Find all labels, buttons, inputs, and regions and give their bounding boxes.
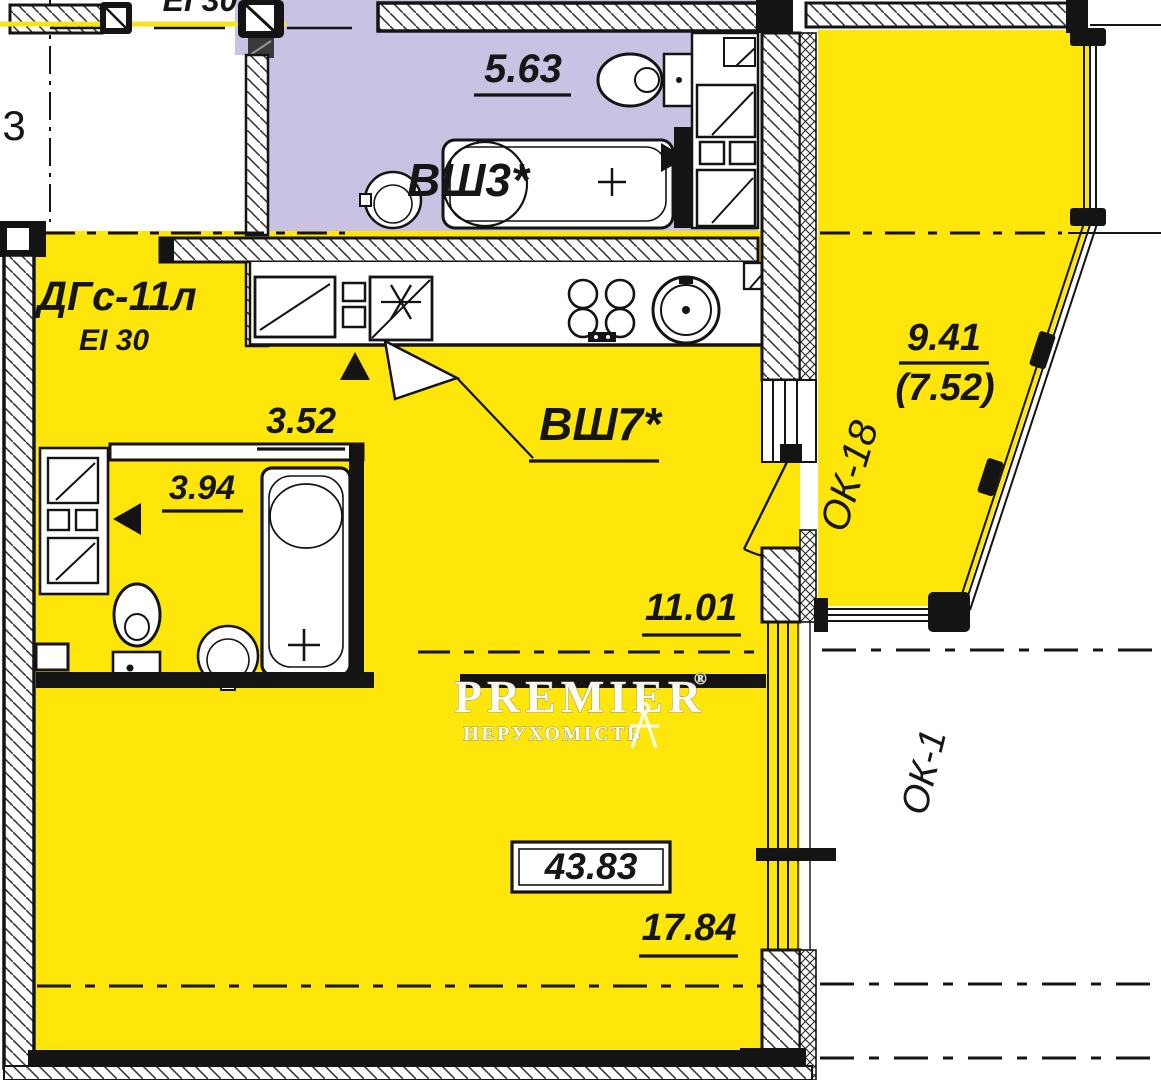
- wall-bathroom-left: [246, 55, 268, 235]
- wall-kitchen-top: [160, 238, 758, 262]
- area-balcony-reduced: (7.52): [895, 367, 994, 409]
- wall-step: [36, 644, 68, 670]
- wall-right-upper: [762, 33, 800, 380]
- dim-bathroom: 3.94: [169, 469, 235, 507]
- fire-rating-top: ЕІ 30: [163, 0, 238, 18]
- wall-bath-top: [110, 444, 363, 460]
- glazing-corner-post: [928, 592, 970, 632]
- floor-plan-svg: 3 ЕІ 30 5.63 ВШ3* ДГс-11л EI 30 3.52 ВШ7…: [0, 0, 1161, 1080]
- bathtub-vertical: [262, 468, 350, 675]
- kitchen-sink: [370, 277, 432, 340]
- washing-machine: [653, 276, 719, 343]
- wall-bottom-edge: [28, 1050, 800, 1066]
- axis-label: 3: [2, 102, 25, 149]
- wall-end-cap: [160, 238, 174, 262]
- watermark-brand: PREMIER: [454, 671, 706, 722]
- insulation-strip: [800, 530, 816, 622]
- shaft-label-vsh3: ВШ3*: [407, 154, 531, 206]
- fire-rating-entry: EI 30: [79, 324, 149, 357]
- watermark-tagline: НЕРУХОМІСТЬ: [463, 723, 642, 745]
- dim-living: 17.84: [641, 907, 736, 949]
- wall-balcony-top: [806, 3, 1068, 27]
- wall-right-mid: [762, 548, 800, 622]
- entry-door-label: ДГс-11л: [34, 273, 196, 319]
- glazing-mullion: [1070, 28, 1106, 46]
- floor-plan: 3 ЕІ 30 5.63 ВШ3* ДГс-11л EI 30 3.52 ВШ7…: [0, 0, 1161, 1080]
- total-area-value: 43.83: [544, 846, 638, 887]
- window-mullion: [756, 848, 836, 861]
- wall-bath-bottom: [36, 672, 374, 688]
- area-kitchen: 11.01: [645, 587, 737, 629]
- corner-notch: [6, 227, 30, 251]
- shaft-label-vsh7: ВШ7*: [539, 398, 663, 450]
- column: [100, 2, 132, 34]
- glazing-mullion: [814, 598, 828, 632]
- wall-bottom: [4, 1066, 812, 1080]
- insulation-strip: [800, 33, 816, 380]
- watermark-reg-icon: ®: [694, 669, 707, 688]
- wall-left: [4, 255, 34, 1068]
- wall-bath-shaft: [674, 127, 692, 228]
- glazing-mullion: [1070, 208, 1106, 226]
- toilet: [113, 584, 160, 684]
- wall-top: [378, 3, 758, 31]
- vent-shaft: [40, 448, 108, 594]
- toilet: [598, 54, 694, 106]
- vent-shaft-column: [692, 33, 758, 228]
- dim-kitchen: 3.52: [266, 400, 336, 441]
- area-balcony: 9.41: [907, 317, 981, 359]
- wall-corner: [756, 0, 793, 33]
- door-hinge-block: [780, 444, 802, 462]
- upper-room-floor: [0, 0, 246, 231]
- kitchen-cabinet: [255, 277, 365, 337]
- wall-right-lower: [762, 950, 800, 1054]
- area-bathroom-top: 5.63: [484, 47, 562, 91]
